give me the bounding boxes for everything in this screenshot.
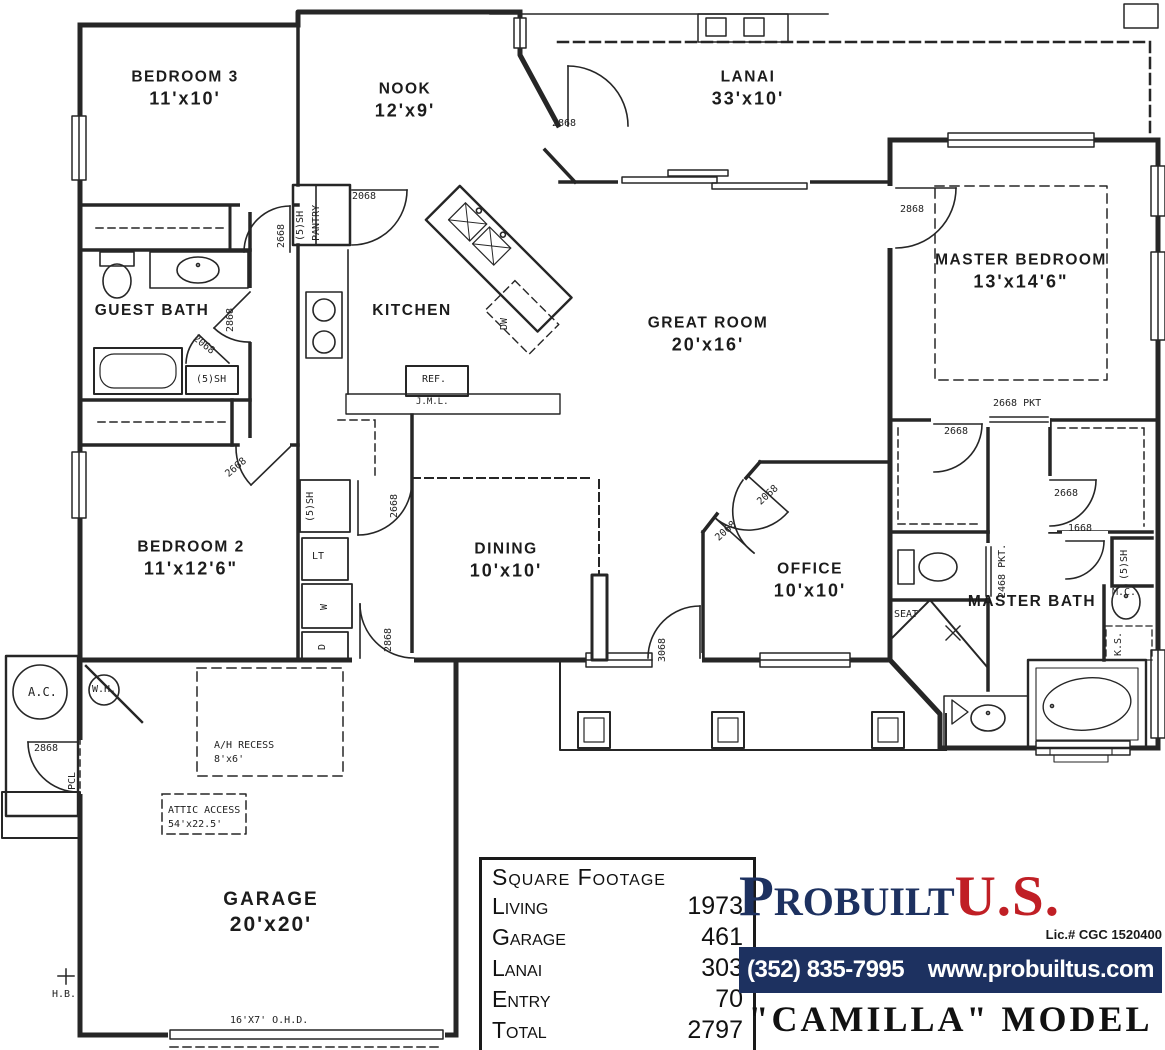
vanity-sink xyxy=(177,257,219,283)
phone-number: (352) 835-7995 xyxy=(747,956,904,984)
hose-bib-label: H.B. xyxy=(52,990,76,1000)
window xyxy=(948,133,1094,147)
sf-value: 1973 xyxy=(687,891,743,922)
pcl-label: PCL xyxy=(68,772,78,790)
attic-access-label: ATTIC ACCESS xyxy=(168,806,240,816)
floor-plan: BEDROOM 311'x10' NOOK12'x9' LANAI33'x10'… xyxy=(0,0,1165,1050)
table-row: Lanai303 xyxy=(492,953,743,984)
porch-column xyxy=(712,712,744,748)
room-label-bedroom2: BEDROOM 211'x12'6" xyxy=(137,539,244,580)
sliding-glass-door-panel xyxy=(668,170,728,176)
door-size-garage-entry: 2868 xyxy=(384,628,394,652)
dryer-label: D xyxy=(318,644,328,650)
room-label-kitchen: KITCHEN xyxy=(372,302,451,320)
sf-label: Living xyxy=(492,891,548,922)
model-name: "CAMILLA" MODEL xyxy=(739,998,1162,1040)
room-label-nook: NOOK12'x9' xyxy=(375,81,436,122)
shower-head-mark xyxy=(952,700,968,724)
contact-banner: (352) 835-7995 www.probuiltus.com xyxy=(739,947,1162,993)
garage-fixtures xyxy=(2,656,142,984)
sf-value: 303 xyxy=(701,953,743,984)
burner xyxy=(313,299,335,321)
square-footage-title: Square Footage xyxy=(492,864,743,891)
logo-suffix: U.S. xyxy=(955,865,1060,928)
closet-right-shelves xyxy=(1058,428,1144,526)
square-footage-table: Square Footage Living1973 Garage461 Lana… xyxy=(479,857,756,1050)
window xyxy=(1151,252,1165,340)
toilet-bowl xyxy=(103,264,131,298)
dishwasher-label: DW xyxy=(500,318,510,330)
overhead-door-label: 16'X7' O.H.D. xyxy=(230,1016,308,1026)
laundry-shelf-label: (5)SH xyxy=(306,492,316,522)
room-label-master-bedroom: MASTER BEDROOM13'x14'6" xyxy=(935,252,1107,293)
window xyxy=(72,452,86,518)
branding-block: ProbuiltU.S. Lic.# CGC 1520400 (352) 835… xyxy=(739,867,1162,1040)
table-row: Living1973 xyxy=(492,891,743,922)
laundry-tub xyxy=(302,538,348,580)
license-number: Lic.# CGC 1520400 xyxy=(739,927,1162,942)
door-size-bedroom3: 2668 xyxy=(277,224,287,248)
tub-step xyxy=(1054,755,1108,762)
ah-recess-label: A/H RECESS xyxy=(214,741,274,751)
door-size-hall: 2668 xyxy=(390,494,400,518)
door-size-pantry: 2068 xyxy=(352,192,376,202)
window xyxy=(1151,166,1165,216)
cooktop xyxy=(306,292,342,358)
door-size-entry: 3068 xyxy=(658,638,668,662)
closet-left-shelves xyxy=(898,428,980,524)
window xyxy=(760,653,850,667)
hose-bib-mark xyxy=(58,969,74,984)
door-size-closet-left: 2668 xyxy=(944,427,968,437)
sf-value: 2797 xyxy=(687,1015,743,1046)
table-row: Total2797 xyxy=(492,1015,743,1046)
water-heater-label: W.H. xyxy=(92,685,116,695)
refrigerator-label: REF. xyxy=(422,375,446,385)
probuilt-logo: ProbuiltU.S. xyxy=(739,867,1162,927)
ah-recess-size: 8'x6' xyxy=(214,755,244,765)
sf-label: Lanai xyxy=(492,953,542,984)
burner xyxy=(313,331,335,353)
garden-tub xyxy=(1028,660,1146,748)
room-label-lanai: LANAI33'x10' xyxy=(712,69,785,110)
door-size-master-entry: 2868 xyxy=(900,205,924,215)
room-label-office: OFFICE10'x10' xyxy=(774,561,847,602)
roof-detail xyxy=(1124,4,1158,28)
ac-label: A.C. xyxy=(28,686,57,698)
window xyxy=(72,116,86,180)
door-size-nook-lanai: 2868 xyxy=(552,119,576,129)
porch-column xyxy=(872,712,904,748)
room-label-dining: DINING10'x10' xyxy=(470,541,543,582)
wc-toilet-bowl xyxy=(919,553,957,581)
room-label-garage: GARAGE20'x20' xyxy=(223,889,318,937)
shower-seat xyxy=(890,600,930,640)
lanai-edge xyxy=(558,42,1150,138)
washer-label: W xyxy=(320,604,330,610)
laundry-tub-label: LT xyxy=(312,552,324,562)
shower-seat-label: SEAT xyxy=(894,610,918,620)
attic-access-size: 54'x22.5' xyxy=(168,820,222,830)
nook-lanai-door xyxy=(568,66,628,126)
dining-column xyxy=(592,575,607,660)
sf-label: Entry xyxy=(492,984,551,1015)
guest-linen-label: (5)SH xyxy=(196,375,226,385)
table-row: Garage461 xyxy=(492,922,743,953)
bathtub xyxy=(94,348,182,394)
front-entry-door xyxy=(648,606,700,658)
door-size-guest-bath: 2868 xyxy=(226,308,236,332)
kitchen-hall-line xyxy=(338,420,375,478)
entry-porch xyxy=(560,663,946,750)
sf-label: Total xyxy=(492,1015,547,1046)
vanity-sink xyxy=(971,705,1005,731)
door-size-garage-side: 2868 xyxy=(34,744,58,754)
wc-toilet-tank xyxy=(898,550,914,584)
porch-column xyxy=(578,712,610,748)
office-door-right xyxy=(714,476,788,530)
jml-label: J.M.L. xyxy=(416,398,449,407)
logo-name: Probuilt xyxy=(739,865,955,928)
door-size-linen: 1668 xyxy=(1068,524,1092,534)
pantry-label: PANTRY xyxy=(312,205,322,241)
laundry-hall-door xyxy=(358,481,412,535)
website-url: www.probuiltus.com xyxy=(928,956,1154,984)
knee-space-label: K.S. xyxy=(1114,632,1124,656)
room-label-master-bath: MASTER BATH xyxy=(968,593,1096,611)
master-linen-shelf: (5)SH xyxy=(1120,550,1130,580)
pocket-door-master: 2668 PKT xyxy=(993,399,1041,409)
pantry-shelf-label: (5)SH xyxy=(296,211,306,241)
door-size-closet-right: 2668 xyxy=(1054,489,1078,499)
window xyxy=(1151,650,1165,738)
room-label-guest-bath: GUEST BATH xyxy=(95,302,210,320)
medicine-cabinet-label: M.C. xyxy=(1112,588,1136,598)
linen-door xyxy=(1066,541,1104,579)
room-label-bedroom3: BEDROOM 311'x10' xyxy=(131,69,238,110)
room-label-great-room: GREAT ROOM20'x16' xyxy=(648,315,769,356)
sf-label: Garage xyxy=(492,922,566,953)
windows xyxy=(72,18,1165,755)
window xyxy=(514,18,526,48)
pocket-door-wc: 2468 PKT. xyxy=(998,544,1008,598)
sf-value: 461 xyxy=(701,922,743,953)
tub-basin xyxy=(1041,674,1134,735)
master-entry-door xyxy=(896,188,956,248)
table-row: Entry70 xyxy=(492,984,743,1015)
